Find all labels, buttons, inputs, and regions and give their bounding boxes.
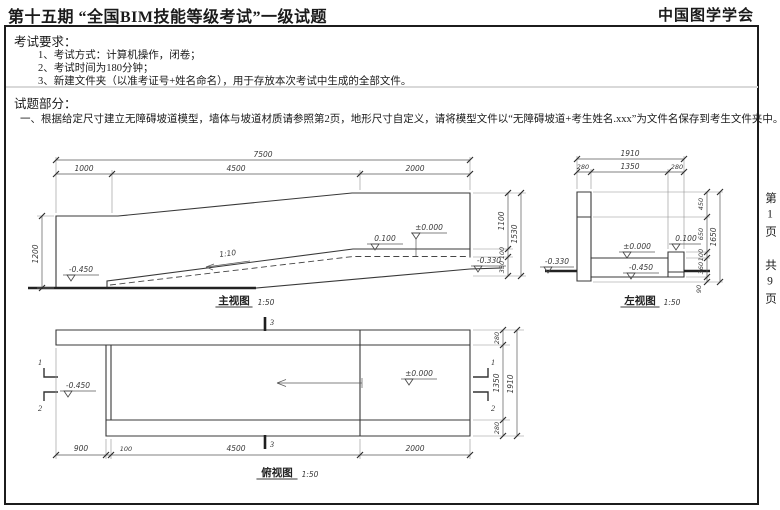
content-frame: [4, 25, 759, 505]
section-divider: [6, 86, 758, 88]
page-title: 第十五期 “全国BIM技能等级考试”一级试题: [8, 3, 327, 27]
question-section-heading: 试题部分：: [14, 93, 77, 112]
question-text: 一、根据给定尺寸建立无障碍坡道模型，墙体与坡道材质请参照第2页，地形尺寸自定义，…: [20, 111, 780, 126]
organization-name: 中国图学学会: [658, 4, 754, 25]
page-total: 共9页: [762, 259, 777, 309]
page-number: 第1页: [762, 192, 777, 242]
